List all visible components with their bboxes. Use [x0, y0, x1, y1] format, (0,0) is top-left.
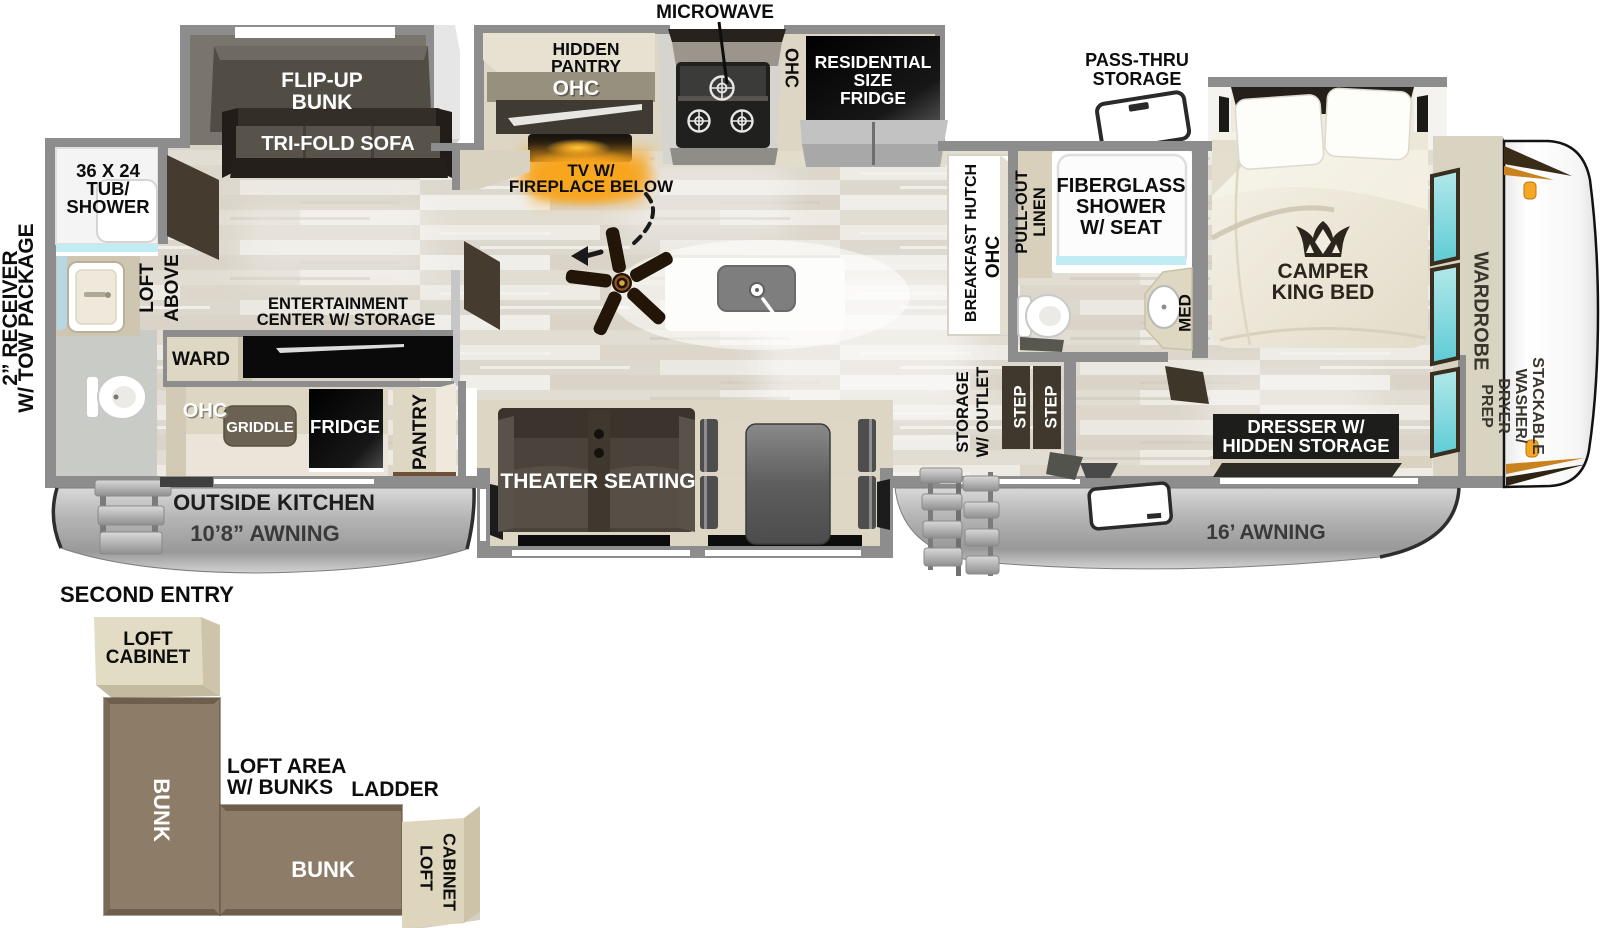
svg-text:2” RECEIVERW/ TOW PACKAGE: 2” RECEIVERW/ TOW PACKAGE — [0, 223, 38, 412]
svg-text:STEP: STEP — [1011, 385, 1029, 428]
svg-text:THEATER SEATING: THEATER SEATING — [500, 470, 695, 493]
svg-text:OHC: OHC — [983, 236, 1004, 279]
svg-text:OHC: OHC — [183, 400, 227, 422]
svg-text:WARD: WARD — [172, 349, 230, 370]
svg-text:TRI-FOLD SOFA: TRI-FOLD SOFA — [261, 133, 414, 155]
svg-text:MED: MED — [1175, 294, 1194, 332]
svg-text:HIDDENPANTRY: HIDDENPANTRY — [551, 39, 621, 76]
svg-text:CAMPERKING BED: CAMPERKING BED — [1272, 260, 1375, 304]
svg-text:BUNK: BUNK — [291, 857, 355, 882]
svg-text:PANTRY: PANTRY — [410, 394, 431, 470]
svg-text:LOFT AREAW/ BUNKS: LOFT AREAW/ BUNKS — [227, 755, 346, 799]
svg-text:OUTSIDE KITCHEN: OUTSIDE KITCHEN — [173, 490, 375, 515]
svg-text:LOFT: LOFT — [416, 845, 436, 891]
svg-text:MICROWAVE: MICROWAVE — [656, 2, 774, 23]
svg-text:BREAKFAST HUTCH: BREAKFAST HUTCH — [963, 164, 980, 322]
svg-text:OHC: OHC — [553, 77, 600, 100]
svg-text:PASS-THRUSTORAGE: PASS-THRUSTORAGE — [1085, 50, 1189, 89]
svg-text:OHC: OHC — [781, 48, 801, 88]
svg-text:WARDROBE: WARDROBE — [1470, 252, 1492, 371]
svg-text:FLIP-UPBUNK: FLIP-UPBUNK — [281, 69, 363, 114]
svg-text:CABINET: CABINET — [439, 833, 459, 911]
svg-text:BUNK: BUNK — [149, 778, 174, 842]
svg-text:STEP: STEP — [1042, 385, 1060, 428]
svg-text:FRIDGE: FRIDGE — [310, 416, 380, 437]
svg-text:DRESSER W/HIDDEN STORAGE: DRESSER W/HIDDEN STORAGE — [1222, 416, 1389, 456]
svg-text:SECOND ENTRY: SECOND ENTRY — [60, 582, 234, 607]
svg-text:GRIDDLE: GRIDDLE — [226, 419, 294, 436]
svg-text:LADDER: LADDER — [351, 778, 439, 801]
svg-text:16’ AWNING: 16’ AWNING — [1206, 521, 1325, 544]
svg-text:10’8” AWNING: 10’8” AWNING — [190, 521, 340, 546]
